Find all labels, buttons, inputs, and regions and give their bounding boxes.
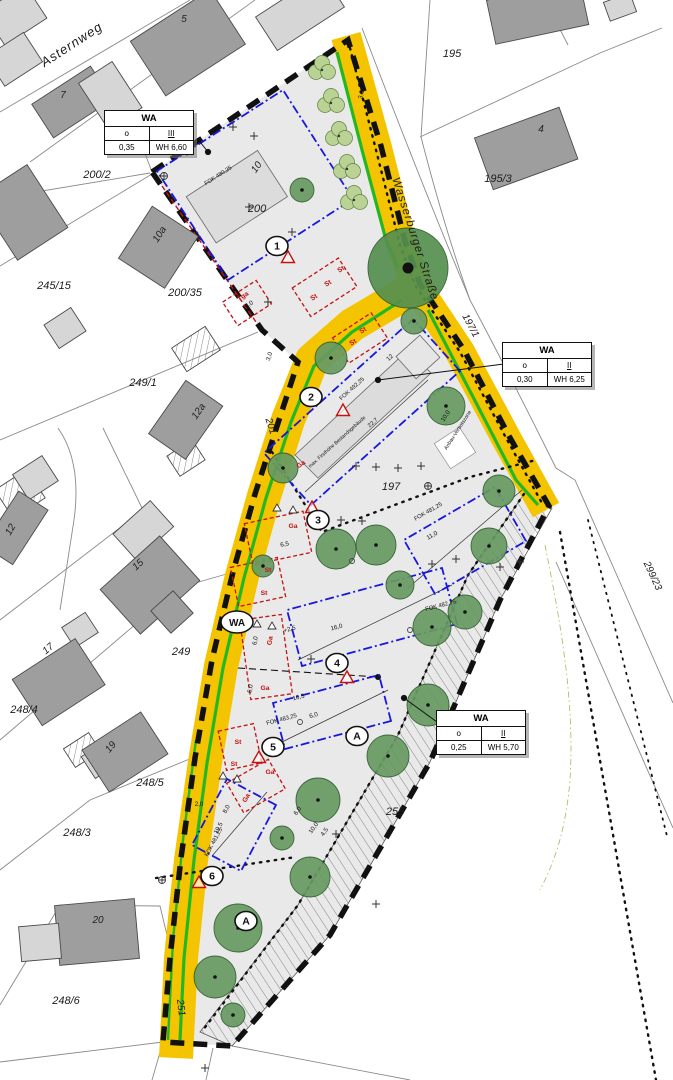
- dimension-label: 3,0: [265, 351, 274, 362]
- parcel-number-label: 248/5: [135, 777, 164, 789]
- tree-icon: [483, 475, 515, 507]
- parking-garage-label: St: [231, 761, 239, 768]
- svg-text:3: 3: [315, 515, 321, 527]
- svg-text:A: A: [353, 731, 361, 743]
- house-number-label: 5: [181, 14, 187, 25]
- zone-marker-6: 6: [201, 867, 223, 886]
- svg-text:6: 6: [209, 871, 215, 883]
- svg-text:4: 4: [334, 658, 340, 670]
- wa-box-grz: 0,35: [105, 141, 149, 154]
- svg-text:WA: WA: [229, 618, 245, 629]
- tree-icon: [194, 956, 236, 998]
- wa-box-title: WA: [105, 111, 193, 127]
- parcel-number-label: 249: [171, 646, 190, 658]
- parcel-number-label: 251: [174, 998, 187, 1017]
- wa-box-open: o: [105, 127, 149, 140]
- wa-box-grz: 0,25: [437, 741, 481, 754]
- parcel-number-label: 249/1: [128, 377, 157, 389]
- area-marker-A: A: [346, 727, 368, 746]
- tree-icon: [290, 857, 330, 897]
- parcel-number-label: 200: [247, 203, 267, 215]
- house-number-label: 7: [60, 90, 66, 101]
- parcel-number-label: 200/35: [167, 287, 203, 299]
- area-marker-A: A: [235, 912, 257, 931]
- tree-icon: [315, 342, 347, 374]
- parcel-number-label: 255: [385, 806, 405, 818]
- parcel-number-label: 197: [382, 481, 401, 493]
- parking-garage-label: Ga: [265, 769, 274, 776]
- parcel-number-label: 248/6: [51, 995, 80, 1007]
- wa-regulation-box-2: WA o II 0,30 WH 6,25: [502, 342, 592, 387]
- parcel-number-label: 195/3: [484, 173, 512, 185]
- svg-text:2: 2: [308, 392, 314, 404]
- tree-icon: [296, 778, 340, 822]
- parcel-number-label: 195: [443, 48, 462, 60]
- parking-garage-label: Ga: [288, 523, 297, 530]
- wa-box-open: o: [437, 727, 481, 740]
- zone-marker-5: 5: [262, 738, 284, 757]
- wa-regulation-box-3: WA o II 0,25 WH 5,70: [436, 710, 526, 755]
- house-number-label: 4: [538, 124, 544, 135]
- zone-marker-2: 2: [300, 388, 322, 407]
- parcel-number-label: 248/3: [62, 827, 91, 839]
- svg-text:1: 1: [274, 241, 280, 253]
- site-plan-page: AsternwegWasserburger Straße 200/2245/15…: [0, 0, 673, 1080]
- wa-regulation-box-1: WA o III 0,35 WH 6,60: [104, 110, 194, 155]
- dimension-label: 2,0: [195, 801, 204, 808]
- wa-box-grz: 0,30: [503, 373, 547, 386]
- zone-marker-1: 1: [266, 237, 288, 256]
- tree-icon: [413, 608, 451, 646]
- parking-garage-label: Ga: [260, 685, 269, 692]
- tree-icon: [356, 525, 396, 565]
- wa-box-storeys: II: [547, 359, 592, 372]
- wa-box-storeys: III: [149, 127, 194, 140]
- tree-icon: [471, 528, 507, 564]
- street-name-label: Asternweg: [37, 19, 105, 70]
- parcel-number-label: 248/4: [9, 704, 38, 716]
- parcel-number-label: 200/2: [82, 169, 111, 181]
- site-plan-map: AsternwegWasserburger Straße 200/2245/15…: [0, 0, 673, 1080]
- tree-icon: [270, 826, 294, 850]
- parcel-number-label: 245/15: [36, 280, 72, 292]
- parcel-number-label: 299/23: [640, 559, 664, 593]
- zone-marker-3: 3: [307, 511, 329, 530]
- road-wa-ellipse: WA: [221, 611, 253, 633]
- wa-box-title: WA: [503, 343, 591, 359]
- tree-icon: [221, 1003, 245, 1027]
- tree-icon: [290, 178, 314, 202]
- parking-garage-label: St: [261, 590, 269, 597]
- tree-icon: [268, 453, 298, 483]
- svg-text:5: 5: [270, 742, 276, 754]
- tree-icon: [367, 735, 409, 777]
- parking-garage-label: St: [265, 567, 273, 574]
- house-number-label: 20: [91, 915, 104, 926]
- road-wa-badge: WA: [221, 611, 253, 633]
- wa-box-wh: WH 5,70: [481, 741, 526, 754]
- wa-box-wh: WH 6,60: [149, 141, 194, 154]
- wa-box-title: WA: [437, 711, 525, 727]
- zone-marker-4: 4: [326, 654, 348, 673]
- wa-box-storeys: II: [481, 727, 526, 740]
- wa-box-open: o: [503, 359, 547, 372]
- wa-box-wh: WH 6,25: [547, 373, 592, 386]
- tree-icon: [401, 308, 427, 334]
- svg-text:A: A: [242, 916, 250, 928]
- parking-garage-label: St: [235, 739, 243, 746]
- tree-icon: [386, 571, 414, 599]
